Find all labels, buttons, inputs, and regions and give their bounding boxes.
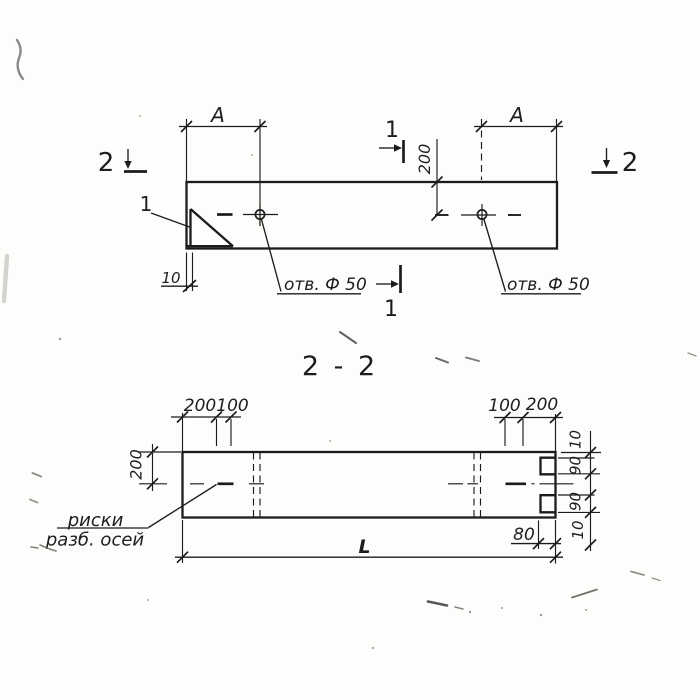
dim-a-left: A [179,103,267,226]
dim-200-right-text: 200 [526,395,558,415]
dim-100-left-text: 100 [216,396,248,416]
dim-top-right: 100 200 [488,395,563,451]
cut-mark-2-right: 2 [592,148,639,178]
detail-ref-1: 1 [140,192,190,227]
dim-a-right-text: A [508,103,524,127]
hole-callout-left: отв. Ф 50 [262,220,367,296]
dim-height-text: 200 [127,449,146,480]
arrowhead-icon [391,280,399,288]
dim-a-right: A [474,103,563,181]
dim-80-notch: 80 [511,521,561,550]
axis-label-line2: разб. осей [45,530,145,551]
top-view: A A 200 1 1 [98,103,639,322]
arrowhead-icon [124,161,131,169]
dim-200-text: 200 [415,144,434,175]
cut-1-top-label: 1 [385,118,399,143]
dim-200-left-text: 200 [184,396,216,416]
cut-2-right-label: 2 [622,148,639,178]
dim-right-90-upper: 90 [567,456,585,475]
arrowhead-icon [603,160,610,168]
dim-right-10-top: 10 [567,430,585,449]
hole-left [217,204,278,226]
dim-top-left: 200 100 [171,396,249,451]
hole-right [435,204,521,226]
cut-2-left-label: 2 [98,148,115,178]
dim-80-text: 80 [513,525,535,545]
cut-mark-1-bottom: 1 [376,265,401,322]
section-title: 2 - 2 [302,351,378,382]
notch-upper [541,458,557,475]
dim-10-plate: 10 [161,253,198,293]
dim-200-depth: 200 [415,139,443,221]
dim-right-90-lower: 90 [567,492,585,511]
arrowhead-icon [394,144,402,152]
hole-label-right: отв. Ф 50 [507,275,590,295]
notch-lower [541,495,557,512]
beam-outline [187,182,558,249]
dim-100-right-text: 100 [488,396,520,416]
detail-ref-label: 1 [140,192,153,216]
dim-length-L: L [175,520,563,564]
dim-10-text: 10 [161,269,180,287]
leader-line [484,220,506,292]
dim-right-10-bottom: 10 [569,520,587,539]
cut-mark-1-top: 1 [379,118,404,163]
dim-a-left-text: A [209,103,225,127]
drawing-canvas: A A 200 1 1 [0,0,700,700]
leader-line [262,220,282,292]
hole-label-left: отв. Ф 50 [284,275,367,295]
hidden-hole-right [474,453,481,518]
scanned-technical-drawing: A A 200 1 1 [0,0,700,700]
cut-mark-2-left: 2 [98,148,147,178]
leader-line [151,213,190,227]
section-outline [183,452,556,518]
dim-L-text: L [358,536,370,558]
cut-1-bottom-label: 1 [384,297,398,322]
dim-chain-right: 10 90 90 10 [558,430,601,551]
hole-callout-right: отв. Ф 50 [484,220,590,296]
section-view: 200 100 100 200 200 риски разб. осей [45,395,601,564]
hidden-hole-left [254,453,261,518]
